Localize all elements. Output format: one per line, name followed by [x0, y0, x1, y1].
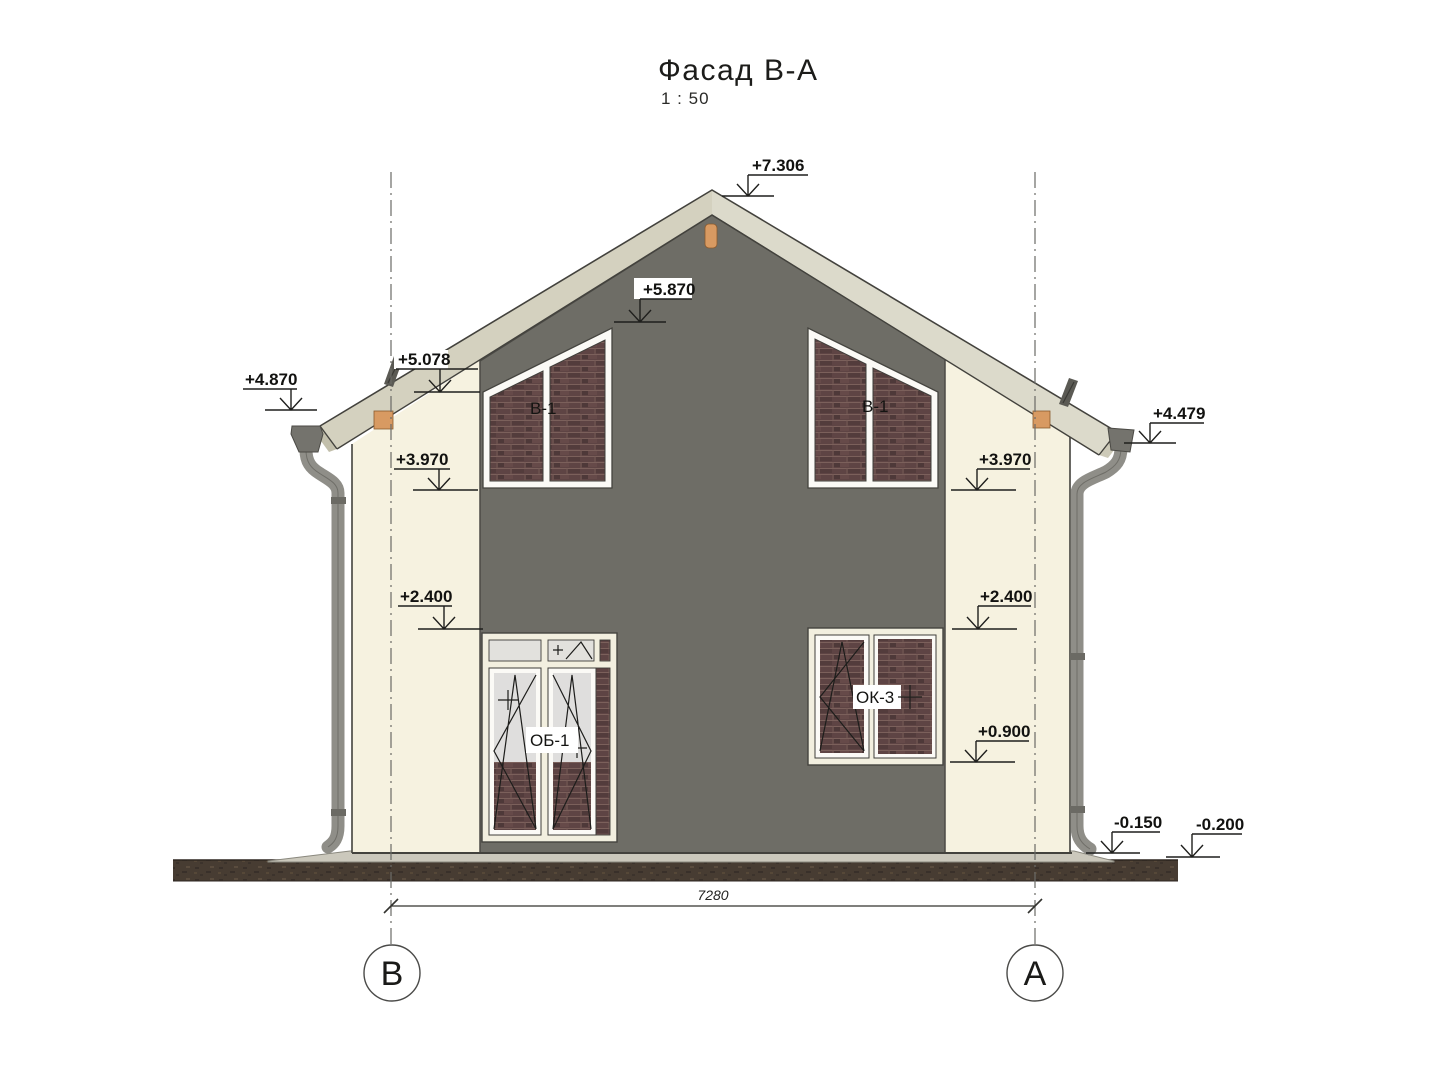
pipe-clamp-right-lower: [1070, 806, 1085, 813]
downspout-right-pipe-shade: [1077, 448, 1121, 849]
door-ob1-left-glass-brick: [494, 762, 536, 830]
facade-drawing: В-1 В-1 ОБ-1 ОК-3: [0, 0, 1440, 1080]
tag-ok3: ОК-3: [856, 688, 894, 707]
elevation-mark-first-floor-head-left-label: +2.400: [400, 587, 452, 606]
elevation-mark-ground-level-symbol: [1166, 834, 1242, 857]
elevation-mark-gable-sill-left-label: +3.970: [396, 450, 448, 469]
ridge-peg: [705, 224, 717, 248]
window-v1-right-pane-1: [815, 339, 866, 481]
downspout-right-pipe: [1077, 448, 1121, 849]
pipe-clamp-left-upper: [331, 497, 346, 504]
elevation-mark-first-floor-head-right-label: +2.400: [980, 587, 1032, 606]
ground-soil: [173, 860, 1178, 881]
tag-v1-right: В-1: [862, 397, 888, 416]
left-wall-peg: [374, 411, 393, 429]
elevation-mark-blind-area: -0.150: [1086, 813, 1162, 853]
elevation-mark-ground-level-label: -0.200: [1196, 815, 1244, 834]
elevation-mark-right-eave: +4.479: [1124, 404, 1205, 443]
door-ob1-side-brick: [596, 668, 610, 835]
window-ok3: ОК-3: [808, 628, 943, 765]
pipe-clamp-left-lower: [331, 809, 346, 816]
elevation-mark-blind-area-label: -0.150: [1114, 813, 1162, 832]
elevation-mark-gable-sill-right-label: +3.970: [979, 450, 1031, 469]
downspout-right: [1070, 428, 1134, 849]
dimension-text: 7280: [697, 887, 728, 903]
axis-letter-b: В: [381, 955, 404, 993]
downspout-left: [291, 426, 346, 847]
door-ob1-transom-1: [489, 640, 541, 661]
pipe-clamp-right-upper: [1070, 653, 1085, 660]
elevation-mark-gable-window-head-label: +5.870: [643, 280, 695, 299]
dimension-overall-width: 7280: [384, 887, 1042, 913]
door-ob1-transom-brick: [600, 640, 610, 661]
elevation-mark-ridge-label: +7.306: [752, 156, 804, 175]
ground-strip: [173, 860, 1178, 881]
axis-letter-a: А: [1024, 955, 1047, 993]
downspout-left-pipe: [306, 450, 338, 847]
elevation-mark-blind-area-symbol: [1086, 832, 1160, 853]
tag-ob1: ОБ-1: [530, 731, 570, 750]
axis-bubble-b: В: [364, 945, 420, 1001]
elevation-mark-left-eave: +4.870: [243, 370, 317, 410]
elevation-mark-ridge: +7.306: [722, 156, 808, 196]
gutter-funnel-left: [291, 426, 323, 452]
tag-v1-left: В-1: [530, 399, 556, 418]
door-ob1-right-glass-brick: [553, 762, 591, 830]
elevation-mark-left-eave-label: +4.870: [245, 370, 297, 389]
drawing-title: Фасад В-А: [658, 54, 819, 87]
elevation-mark-left-eave-symbol: [243, 389, 317, 410]
elevation-mark-ridge-symbol: [722, 175, 808, 196]
drawing-scale: 1 : 50: [661, 89, 710, 108]
axis-bubble-a: А: [1007, 945, 1063, 1001]
elevation-mark-roof-at-axis-b-label: +5.078: [398, 350, 450, 369]
elevation-mark-window-sill-right-label: +0.900: [978, 722, 1030, 741]
gutter-funnel-right: [1108, 428, 1134, 452]
elevation-mark-right-eave-symbol: [1124, 423, 1204, 443]
elevation-mark-ground-level: -0.200: [1166, 815, 1244, 857]
elevation-mark-right-eave-label: +4.479: [1153, 404, 1205, 423]
door-ob1: ОБ-1: [482, 633, 617, 842]
